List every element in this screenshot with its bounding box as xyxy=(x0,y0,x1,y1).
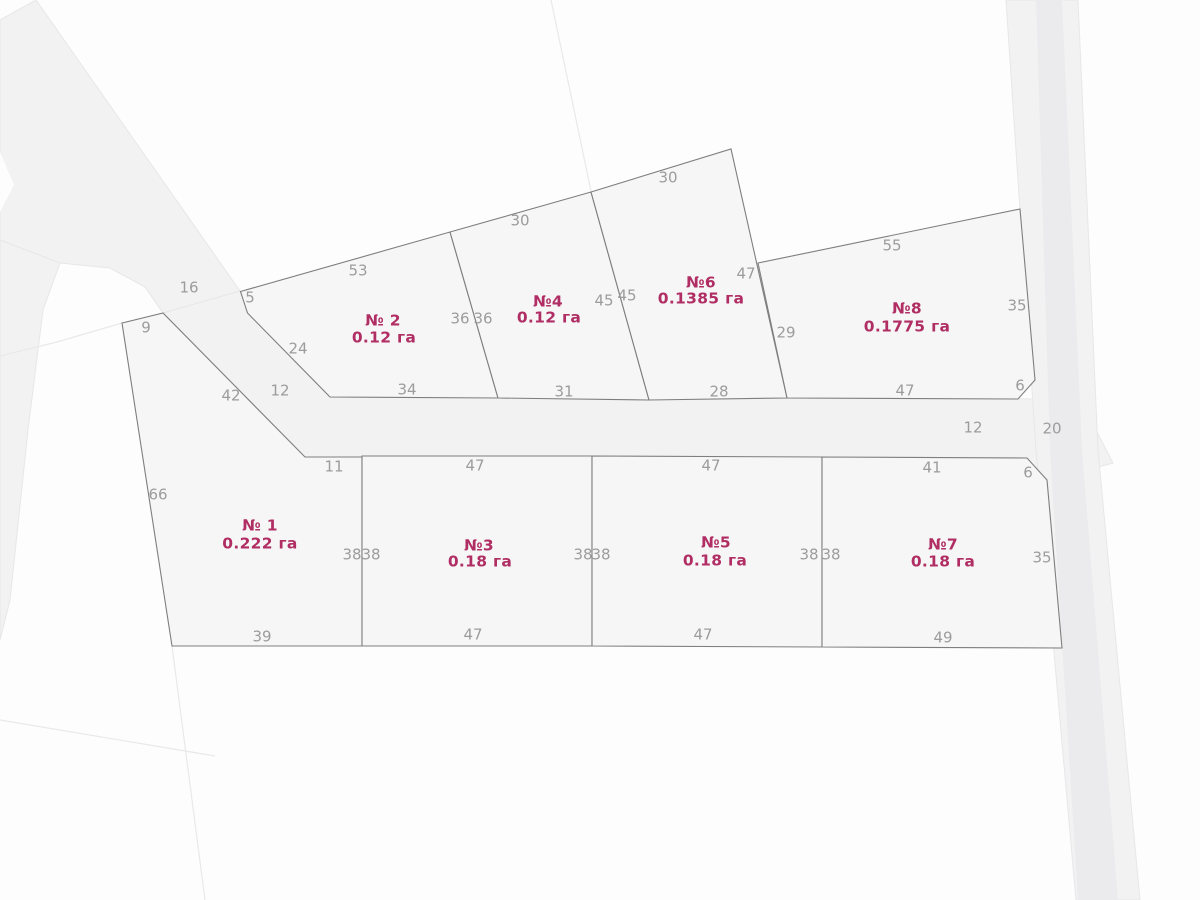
edge-length-label: 38 xyxy=(591,546,610,564)
edge-length-label: 45 xyxy=(617,287,636,305)
plot-number-1: № 1 xyxy=(242,517,278,535)
edge-length-label: 11 xyxy=(324,458,343,476)
edge-length-label: 47 xyxy=(693,626,712,644)
plot-number-5: №5 xyxy=(701,534,731,552)
edge-length-label: 6 xyxy=(1023,464,1033,482)
edge-length-label: 5 xyxy=(245,289,255,307)
edge-length-label: 38 xyxy=(342,546,361,564)
edge-length-label: 24 xyxy=(288,340,307,358)
plot-number-7: №7 xyxy=(928,536,958,554)
plot-area-8: 0.1775 га xyxy=(864,318,950,336)
edge-length-label: 47 xyxy=(463,626,482,644)
plot-area-3: 0.18 га xyxy=(448,553,512,571)
plot-area-6: 0.1385 га xyxy=(658,290,744,308)
edge-length-label: 35 xyxy=(1032,549,1051,567)
edge-length-label: 34 xyxy=(397,381,416,399)
plot-number-2: № 2 xyxy=(365,312,401,330)
edge-length-label: 39 xyxy=(252,628,271,646)
plot-area-4: 0.12 га xyxy=(517,309,581,327)
edge-length-label: 12 xyxy=(270,382,289,400)
edge-length-label: 45 xyxy=(594,292,613,310)
edge-length-label: 47 xyxy=(895,382,914,400)
edge-length-label: 38 xyxy=(799,546,818,564)
edge-length-label: 38 xyxy=(821,546,840,564)
edge-length-label: 53 xyxy=(348,262,367,280)
edge-length-label: 9 xyxy=(141,319,151,337)
edge-length-label: 55 xyxy=(882,237,901,255)
map-canvas[interactable]: 1695532442123436363031454530284729553564… xyxy=(0,0,1200,900)
edge-length-label: 35 xyxy=(1007,297,1026,315)
edge-length-label: 29 xyxy=(776,324,795,342)
edge-length-label: 42 xyxy=(221,387,240,405)
edge-length-label: 47 xyxy=(736,265,755,283)
edge-length-label: 49 xyxy=(933,629,952,647)
edge-length-label: 6 xyxy=(1015,377,1025,395)
edge-length-label: 66 xyxy=(148,486,167,504)
edge-length-label: 36 xyxy=(473,310,492,328)
edge-length-label: 30 xyxy=(658,169,677,187)
edge-length-label: 38 xyxy=(361,546,380,564)
edge-length-label: 47 xyxy=(701,457,720,475)
plot-area-1: 0.222 га xyxy=(222,535,297,553)
edge-length-label: 47 xyxy=(465,457,484,475)
plot-area-5: 0.18 га xyxy=(683,552,747,570)
edge-length-label: 30 xyxy=(510,212,529,230)
edge-length-label: 20 xyxy=(1042,420,1061,438)
edge-length-label: 31 xyxy=(554,383,573,401)
edge-length-label: 12 xyxy=(963,419,982,437)
cadastral-map[interactable]: 1695532442123436363031454530284729553564… xyxy=(0,0,1200,900)
edge-length-label: 38 xyxy=(573,546,592,564)
edge-length-label: 28 xyxy=(709,383,728,401)
edge-length-label: 41 xyxy=(922,459,941,477)
edge-length-label: 36 xyxy=(450,310,469,328)
plot-area-7: 0.18 га xyxy=(911,553,975,571)
edge-length-label: 16 xyxy=(179,279,198,297)
plot-area-2: 0.12 га xyxy=(352,329,416,347)
plot-number-8: №8 xyxy=(892,300,922,318)
